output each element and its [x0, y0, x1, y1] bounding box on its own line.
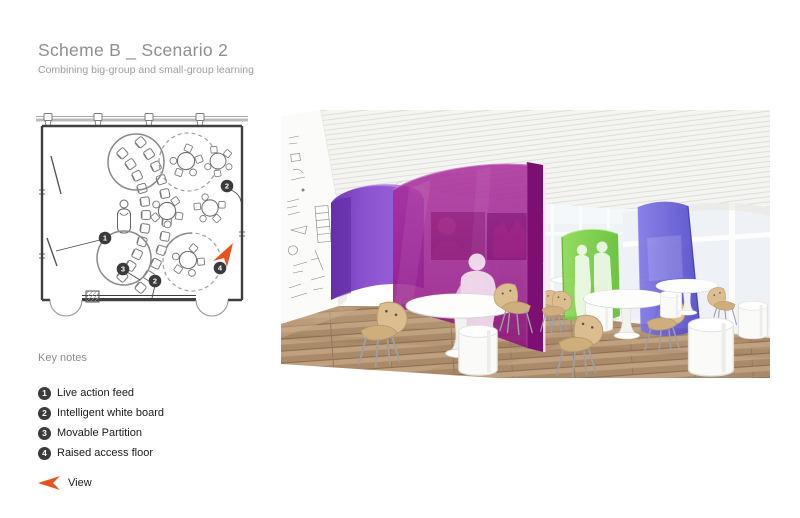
marker-1: 1: [103, 234, 107, 243]
key-notes-list: 1 Live action feed 2 Intelligent white b…: [38, 386, 164, 460]
note-label: Intelligent white board: [57, 407, 164, 419]
page-title: Scheme B _ Scenario 2: [38, 40, 254, 61]
note-number-badge: 3: [38, 427, 51, 440]
perspective-render: [281, 110, 770, 378]
view-direction-icon: [38, 476, 60, 490]
note-item: 1 Live action feed: [38, 386, 164, 400]
note-item: 2 Intelligent white board: [38, 406, 164, 420]
key-notes: Key notes 1 Live action feed 2 Intellige…: [38, 352, 164, 490]
note-label: Live action feed: [57, 387, 134, 399]
note-item: 4 Raised access floor: [38, 446, 164, 460]
view-legend: View: [38, 476, 164, 490]
note-label: Raised access floor: [57, 447, 153, 459]
marker-2a: 2: [225, 182, 229, 191]
projection-screen: [47, 156, 61, 266]
note-item: 3 Movable Partition: [38, 426, 164, 440]
column: [86, 291, 99, 302]
note-number-badge: 4: [38, 447, 51, 460]
stool: [459, 325, 497, 375]
doors: [50, 300, 228, 316]
ceiling-rail: [36, 114, 248, 127]
note-number-badge: 1: [38, 387, 51, 400]
marker-3: 3: [121, 265, 125, 274]
note-number-badge: 2: [38, 407, 51, 420]
presenter-figure: [118, 200, 131, 233]
key-notes-heading: Key notes: [38, 352, 164, 364]
header: Scheme B _ Scenario 2 Combining big-grou…: [38, 40, 254, 76]
marker-2b: 2: [153, 277, 157, 286]
floor-plan: 1 2 3 2 4: [36, 112, 252, 318]
view-label: View: [68, 477, 92, 489]
note-label: Movable Partition: [57, 427, 142, 439]
page-subtitle: Combining big-group and small-group lear…: [38, 64, 254, 76]
